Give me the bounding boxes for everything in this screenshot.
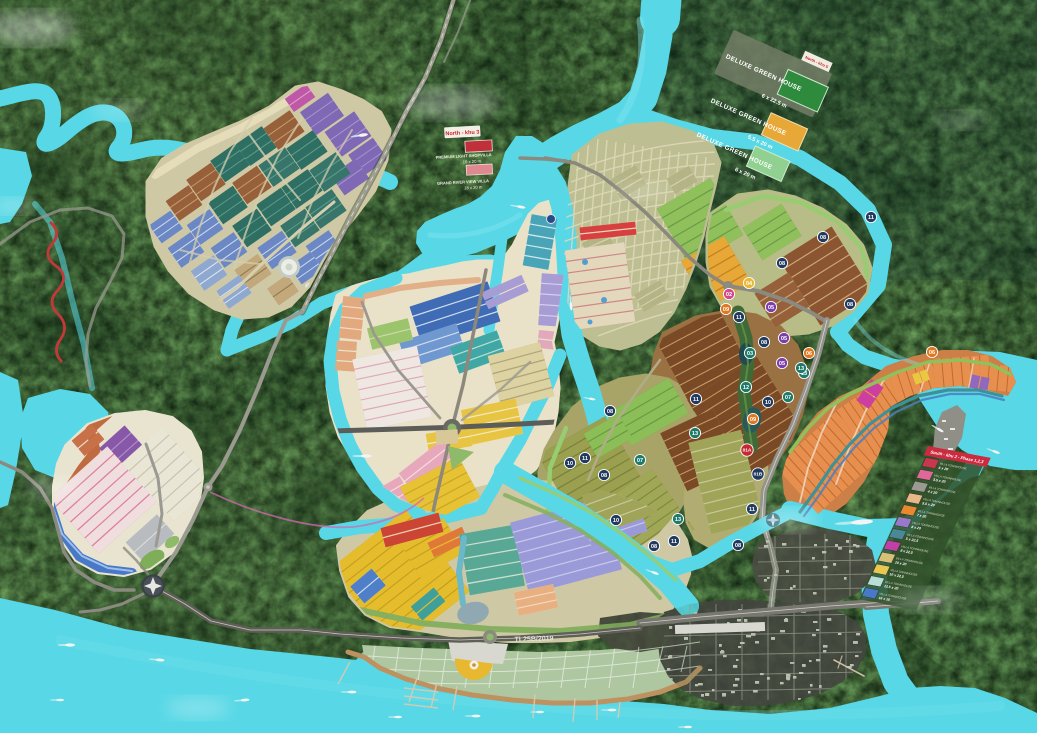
svg-text:10: 10 (613, 518, 619, 524)
svg-text:09: 09 (750, 417, 756, 423)
svg-text:08: 08 (761, 340, 767, 346)
svg-text:13: 13 (675, 517, 681, 523)
svg-text:02: 02 (726, 292, 732, 298)
svg-text:08: 08 (651, 544, 657, 550)
svg-text:07: 07 (637, 458, 643, 464)
svg-text:06: 06 (929, 350, 935, 356)
svg-text:11: 11 (868, 215, 874, 221)
svg-text:04: 04 (746, 281, 753, 287)
svg-text:13: 13 (692, 431, 698, 437)
svg-text:09: 09 (723, 307, 729, 313)
svg-text:12: 12 (743, 385, 749, 391)
svg-text:08: 08 (847, 302, 853, 308)
svg-text:06: 06 (806, 351, 812, 357)
svg-text:11: 11 (749, 507, 755, 513)
svg-text:08: 08 (601, 473, 607, 479)
svg-text:05: 05 (781, 336, 787, 342)
svg-text:01A: 01A (743, 448, 752, 454)
svg-text:TL25B/2019: TL25B/2019 (514, 635, 553, 643)
svg-text:05: 05 (779, 361, 785, 367)
svg-text:10: 10 (765, 400, 771, 406)
svg-text:01B: 01B (754, 472, 763, 478)
svg-text:08: 08 (607, 409, 613, 415)
svg-text:18 x 20 m: 18 x 20 m (464, 184, 483, 190)
svg-text:10: 10 (567, 461, 573, 467)
svg-text:11: 11 (736, 315, 742, 321)
svg-text:10 x 20 m: 10 x 20 m (463, 158, 482, 164)
svg-text:05: 05 (768, 305, 774, 311)
svg-text:08: 08 (735, 543, 741, 549)
svg-text:03: 03 (747, 351, 753, 357)
svg-text:11: 11 (693, 397, 699, 403)
svg-text:11: 11 (671, 539, 677, 545)
svg-text:11: 11 (582, 456, 588, 462)
svg-text:08: 08 (820, 235, 826, 241)
svg-text:13: 13 (798, 366, 804, 372)
svg-text:07: 07 (785, 395, 791, 401)
svg-text:08: 08 (779, 261, 785, 267)
